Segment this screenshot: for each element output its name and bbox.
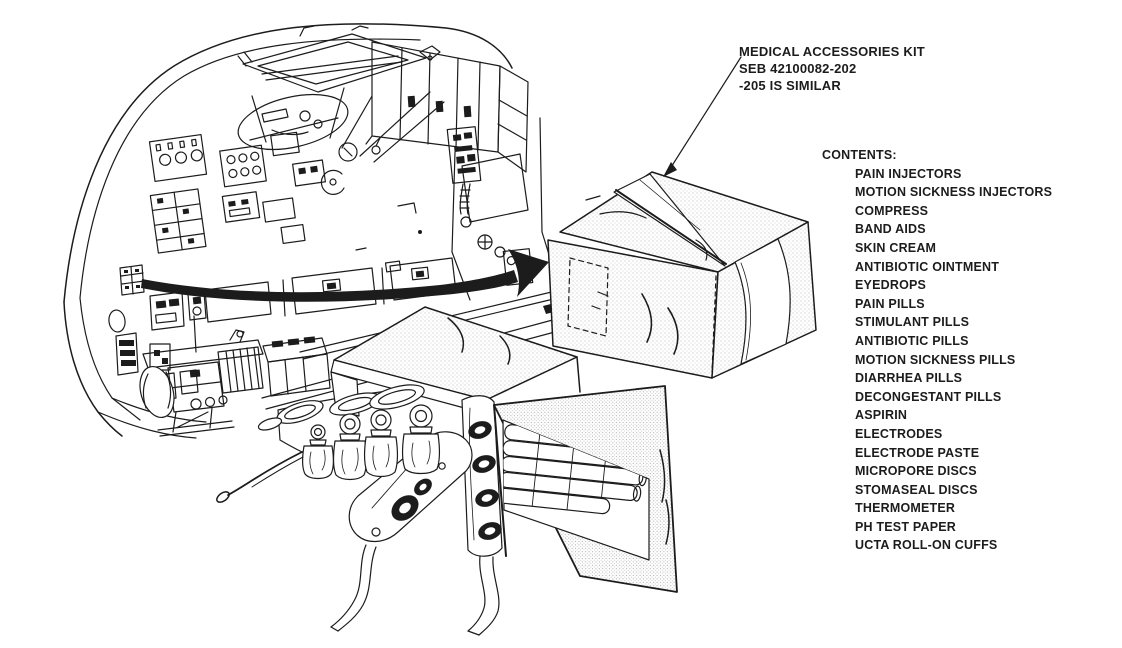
contents-item: STIMULANT PILLS bbox=[855, 313, 1052, 332]
contents-item: COMPRESS bbox=[855, 202, 1052, 221]
contents-item: ELECTRODE PASTE bbox=[855, 444, 1052, 463]
kit-note: -205 IS SIMILAR bbox=[739, 77, 925, 94]
contents-item: ANTIBIOTIC PILLS bbox=[855, 332, 1052, 351]
contents-item: MICROPORE DISCS bbox=[855, 462, 1052, 481]
bottle-row bbox=[303, 405, 440, 480]
contents-item: SKIN CREAM bbox=[855, 239, 1052, 258]
contents-item: ELECTRODES bbox=[855, 425, 1052, 444]
contents-item: MOTION SICKNESS INJECTORS bbox=[855, 183, 1052, 202]
contents-items: PAIN INJECTORS MOTION SICKNESS INJECTORS… bbox=[822, 165, 1052, 555]
contents-item: DECONGESTANT PILLS bbox=[855, 388, 1052, 407]
contents-list: CONTENTS: PAIN INJECTORS MOTION SICKNESS… bbox=[822, 146, 1052, 555]
kit-callout: MEDICAL ACCESSORIES KIT SEB 42100082-202… bbox=[739, 43, 925, 94]
contents-item: DIARRHEA PILLS bbox=[855, 369, 1052, 388]
contents-item: MOTION SICKNESS PILLS bbox=[855, 351, 1052, 370]
contents-item: EYEDROPS bbox=[855, 276, 1052, 295]
contents-header: CONTENTS: bbox=[822, 146, 1052, 165]
leader-line bbox=[663, 57, 741, 177]
kit-title: MEDICAL ACCESSORIES KIT bbox=[739, 43, 925, 60]
contents-item: BAND AIDS bbox=[855, 220, 1052, 239]
contents-item: UCTA ROLL-ON CUFFS bbox=[855, 536, 1052, 555]
closed-kit-illustration bbox=[548, 172, 816, 378]
kit-part-number: SEB 42100082-202 bbox=[739, 60, 925, 77]
stowage-location-arrow bbox=[141, 249, 549, 302]
figure-page: MEDICAL ACCESSORIES KIT SEB 42100082-202… bbox=[0, 0, 1122, 648]
contents-item: STOMASEAL DISCS bbox=[855, 481, 1052, 500]
contents-item: ANTIBIOTIC OINTMENT bbox=[855, 258, 1052, 277]
contents-item: ASPIRIN bbox=[855, 406, 1052, 425]
contents-item: THERMOMETER bbox=[855, 499, 1052, 518]
contents-item: PAIN INJECTORS bbox=[855, 165, 1052, 184]
contents-item: PH TEST PAPER bbox=[855, 518, 1052, 537]
contents-item: PAIN PILLS bbox=[855, 295, 1052, 314]
